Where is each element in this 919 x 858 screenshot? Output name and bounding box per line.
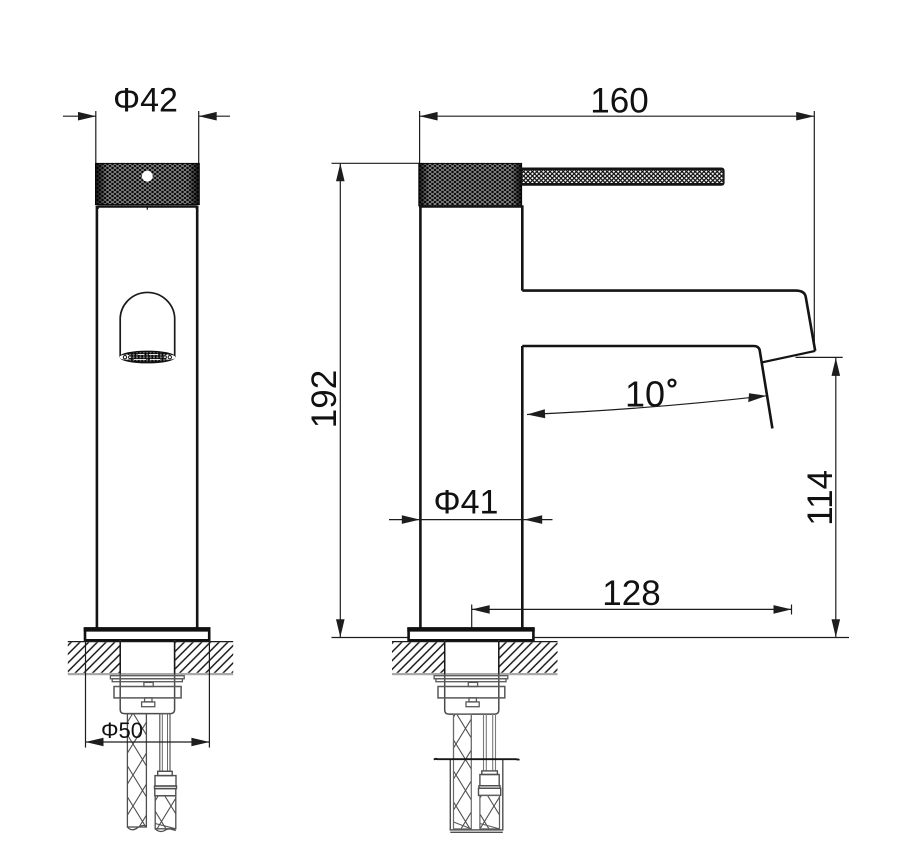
svg-text:192: 192 bbox=[305, 370, 344, 428]
svg-text:160: 160 bbox=[590, 82, 648, 121]
svg-text:Φ41: Φ41 bbox=[434, 484, 499, 522]
svg-text:114: 114 bbox=[801, 470, 840, 526]
svg-text:128: 128 bbox=[602, 574, 660, 613]
svg-text:Φ42: Φ42 bbox=[113, 82, 178, 120]
svg-text:Φ50: Φ50 bbox=[101, 718, 143, 743]
